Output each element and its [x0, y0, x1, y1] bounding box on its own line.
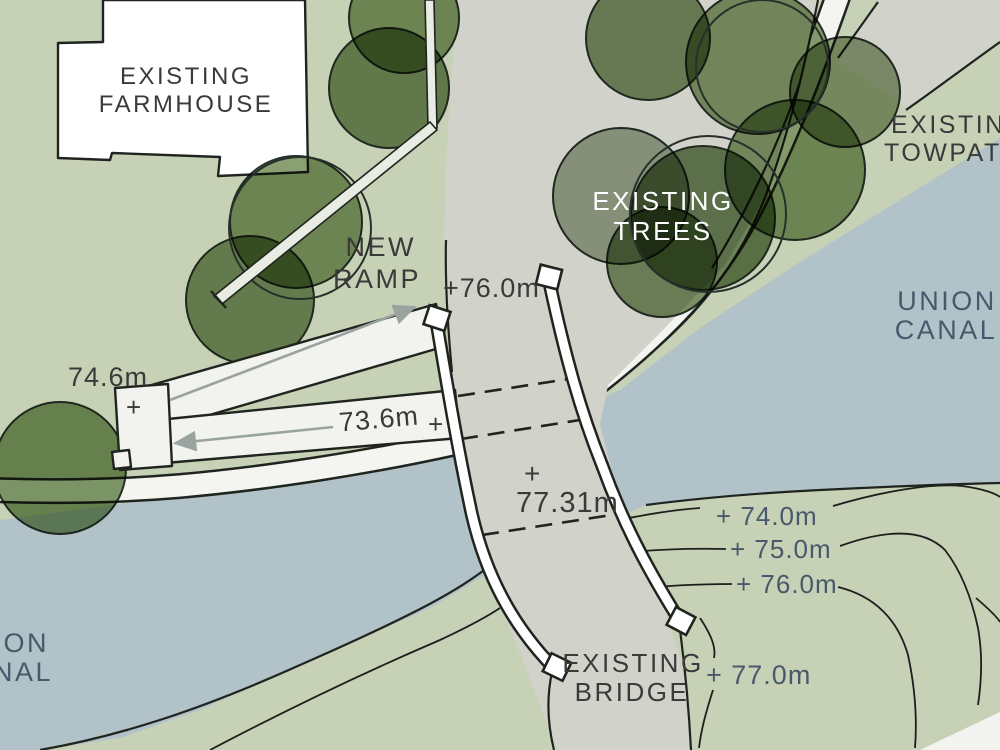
contour-75-label: + 75.0m [730, 534, 832, 564]
farmhouse-label-line1: EXISTING [120, 63, 252, 90]
existing-bridge-label-line2: BRIDGE [575, 677, 690, 707]
existing-towpath-label-line2: TOWPATH [884, 139, 1000, 167]
union-canal-west-label-line2: CANAL [0, 657, 53, 687]
bridge-centre-elevation: 77.31m [516, 487, 619, 519]
existing-trees-label-line2: TREES [613, 216, 712, 246]
union-canal-east-label-line2: CANAL [895, 315, 998, 345]
farmhouse-label-line2: FARMHOUSE [99, 91, 274, 118]
deck-north-elevation: +76.0m [443, 273, 540, 303]
union-canal-east-label-line1: UNION [897, 286, 997, 316]
upper-landing-plus: + [126, 392, 141, 422]
new-ramp-label-line1: NEW [346, 232, 417, 262]
upper-landing-elevation: 74.6m [68, 362, 148, 392]
contour-77-label: + 77.0m [706, 660, 811, 690]
new-ramp-label-line2: RAMP [333, 264, 421, 294]
existing-trees-label-line1: EXISTING [592, 186, 733, 216]
site-plan-canvas: EXISTING FARMHOUSE NEW RAMP EXISTING TRE… [0, 0, 1000, 750]
contour-76-label: + 76.0m [736, 569, 838, 599]
site-plan-drawing: EXISTING FARMHOUSE NEW RAMP EXISTING TRE… [0, 0, 1000, 750]
towpath-gate [112, 450, 131, 469]
fence-segment-vertical [425, 0, 437, 128]
tree-canopy [0, 402, 126, 534]
lower-ramp-plus: + [428, 409, 443, 439]
contour-74-label: + 74.0m [716, 501, 818, 531]
bridge-centre-plus: + [524, 458, 540, 489]
parapet-post-northeast [536, 265, 562, 290]
union-canal-west-label-line1: UNION [0, 628, 49, 658]
existing-bridge-label-line1: EXISTING [562, 648, 703, 678]
existing-towpath-label-line1: EXISTING [891, 111, 1000, 139]
